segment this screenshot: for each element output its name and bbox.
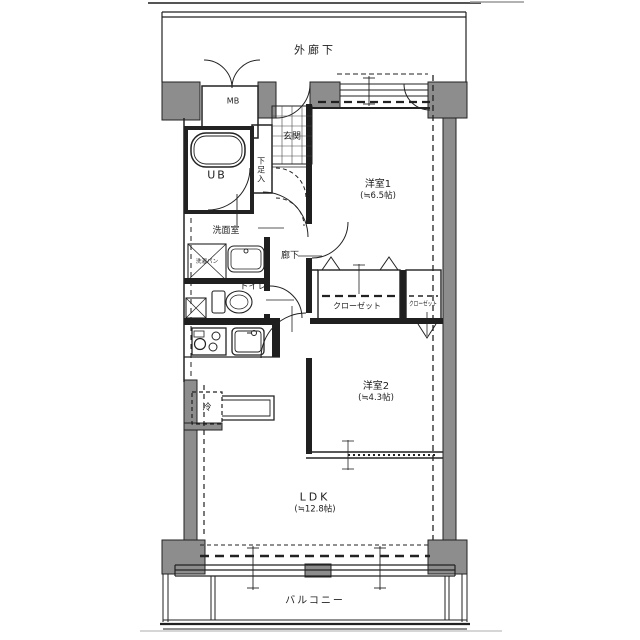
kitchen-stove <box>192 328 226 355</box>
ldk-counter <box>222 396 274 420</box>
label-refrigerator: 冷 <box>202 403 211 413</box>
bedroom1-door <box>298 222 348 258</box>
label-ldk: LDK (≒12.8帖) <box>294 491 335 514</box>
bedroom1-size: (≒6.5帖) <box>360 191 396 201</box>
floorplan-drawing <box>0 0 640 640</box>
label-bedroom2: 洋室2 (≒4.3帖) <box>358 381 394 403</box>
kitchen-sink <box>232 328 264 355</box>
label-bedroom1: 洋室1 (≒6.5帖) <box>360 179 396 201</box>
label-hallway: 廊下 <box>281 251 299 261</box>
bedroom1-name: 洋室1 <box>365 179 391 191</box>
bedroom2-lower-wall <box>306 440 443 470</box>
label-unit-bath: UB <box>207 170 227 183</box>
bedroom2-size: (≒4.3帖) <box>358 393 394 403</box>
label-closet-main: クローゼット <box>333 301 381 310</box>
wash-basin <box>228 246 264 272</box>
pipe-space-box <box>186 298 206 318</box>
bedroom2-name: 洋室2 <box>363 381 389 393</box>
label-exterior-corridor: 外廊下 <box>294 45 336 58</box>
ldk-door <box>261 306 306 358</box>
label-closet-small: クローゼット <box>409 300 437 307</box>
label-laundry-pan: 洗濯パン <box>196 259 218 265</box>
shoe-cabinet-doors <box>276 168 306 226</box>
label-balcony: バルコニー <box>285 595 345 607</box>
entrance-door-arc <box>276 84 310 118</box>
ldk-name: LDK <box>300 491 331 504</box>
label-meter-box: MB <box>227 96 239 105</box>
label-shoe-cabinet: 下足入 <box>256 157 265 184</box>
ldk-size: (≒12.8帖) <box>294 505 335 515</box>
label-toilet: トイレ <box>239 282 266 292</box>
toilet-fixture <box>212 291 252 313</box>
label-washroom: 洗面室 <box>212 226 239 236</box>
floorplan-page: 外廊下 MB 玄関 下足入 UB 洗面室 洗濯パン トイレ 廊下 洋室1 (≒6… <box>0 0 640 640</box>
toilet-door <box>266 286 302 318</box>
label-entrance: 玄関 <box>283 132 301 142</box>
